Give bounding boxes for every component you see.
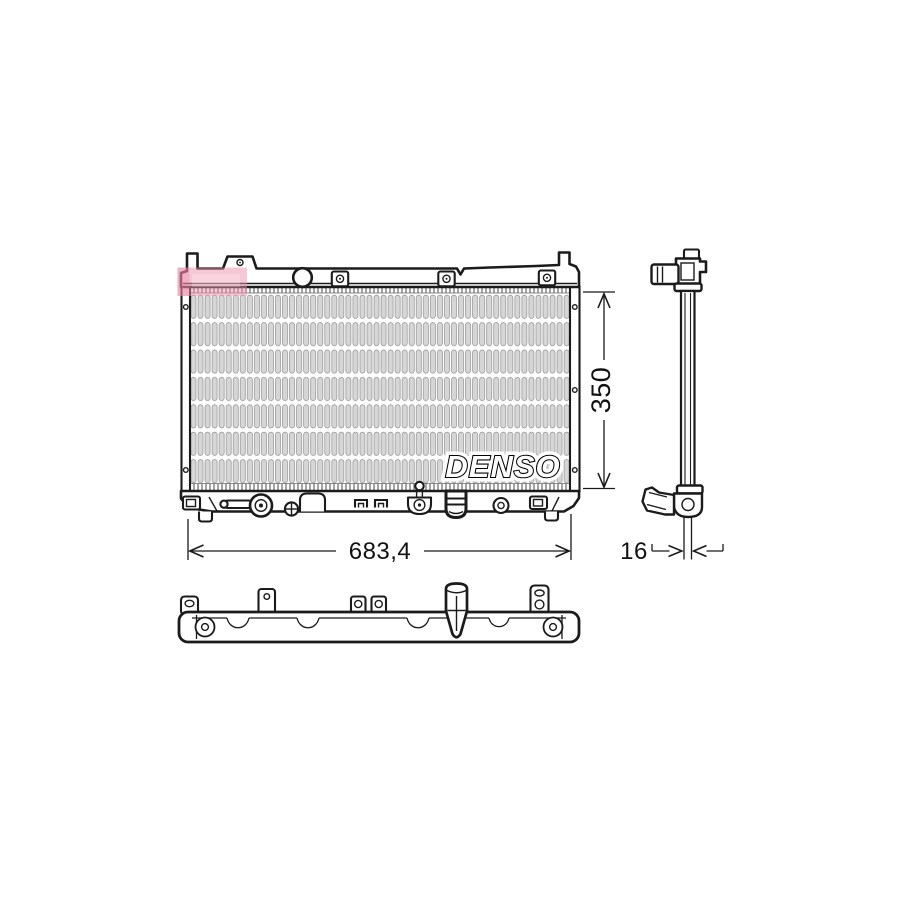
outlet-pipe — [446, 491, 466, 518]
sensor-fitting — [494, 498, 509, 513]
tank-dome — [300, 494, 325, 512]
denso-logo-text: DENSO — [445, 449, 560, 484]
highlight-marker — [178, 268, 248, 297]
dimension-core-height: 350 — [583, 292, 616, 489]
radiator-technical-drawing: DENSO DENSO 350 683,4 — [0, 0, 900, 900]
dimension-overall-width: 683,4 — [188, 514, 571, 565]
denso-logo: DENSO DENSO — [445, 449, 560, 484]
side-view: 16 — [620, 250, 723, 566]
dimension-core-depth: 16 — [620, 518, 723, 566]
core-height-label: 350 — [586, 367, 616, 414]
side-top-assembly — [652, 250, 707, 292]
side-core-profile — [681, 291, 695, 487]
filler-neck — [293, 268, 312, 287]
bottom-bracket-view — [179, 584, 579, 643]
side-bottom-assembly — [643, 486, 703, 518]
front-view: DENSO DENSO — [178, 253, 580, 522]
core-depth-label: 16 — [620, 538, 648, 565]
overall-width-label: 683,4 — [349, 538, 412, 565]
bracket-tabs — [181, 586, 549, 616]
bracket-rail — [179, 612, 579, 642]
bleed-screw — [285, 502, 299, 517]
drawing-canvas: DENSO DENSO 350 683,4 — [0, 0, 900, 900]
